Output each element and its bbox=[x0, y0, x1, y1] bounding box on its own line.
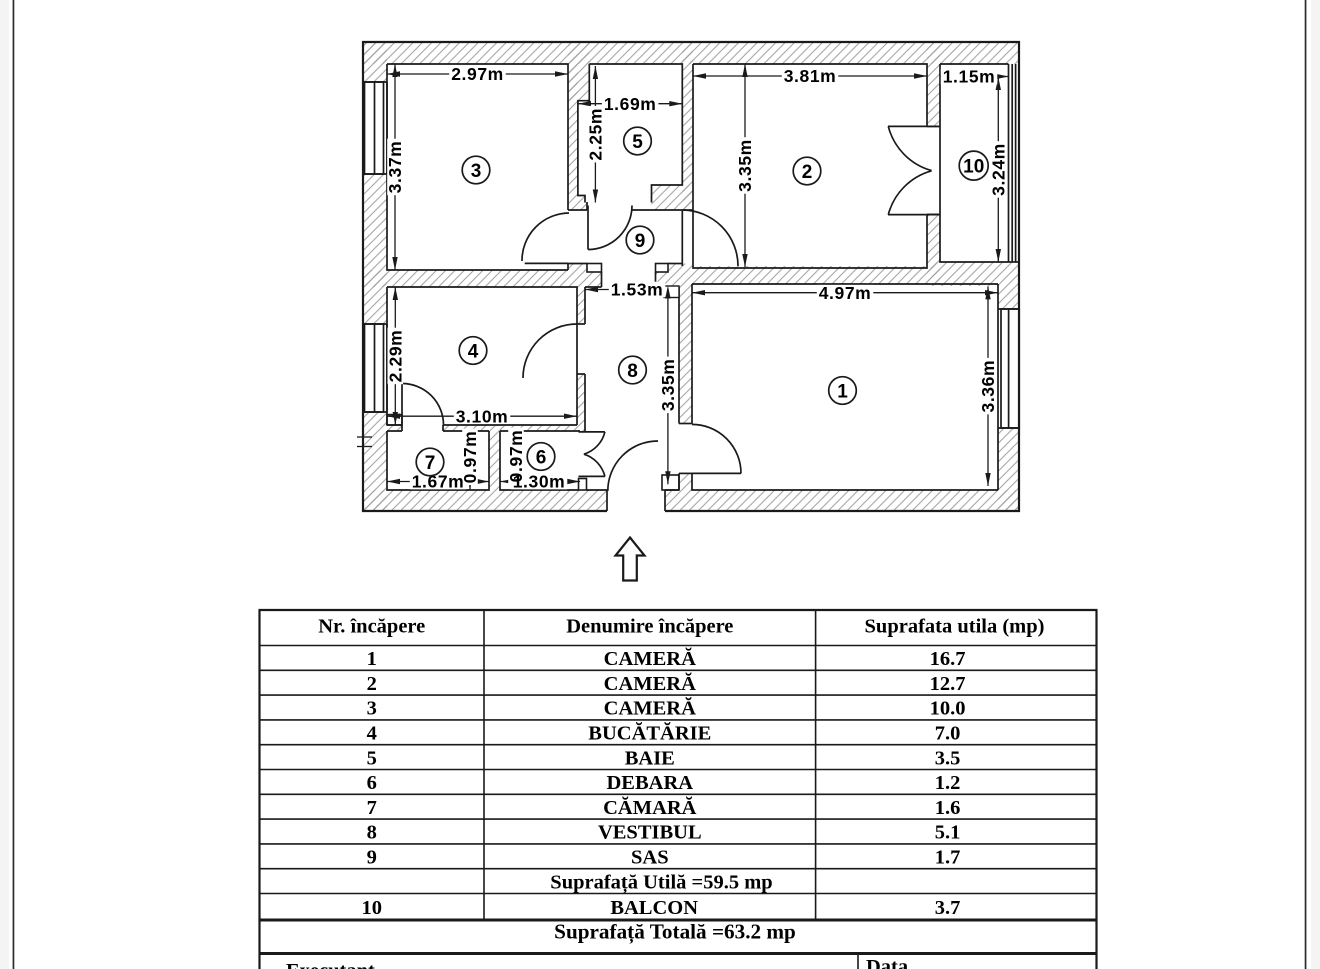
svg-text:3.10m: 3.10m bbox=[456, 406, 509, 426]
svg-text:Suprafață Utilă =59.5 mp: Suprafață Utilă =59.5 mp bbox=[550, 871, 772, 894]
svg-text:4: 4 bbox=[367, 723, 377, 745]
svg-text:Executant: Executant bbox=[286, 960, 375, 969]
svg-text:7: 7 bbox=[425, 453, 436, 474]
svg-text:9: 9 bbox=[367, 847, 377, 869]
svg-text:CĂMARĂ: CĂMARĂ bbox=[603, 795, 697, 819]
svg-text:7: 7 bbox=[367, 797, 377, 819]
svg-text:3.35m: 3.35m bbox=[658, 359, 678, 412]
svg-text:3.24m: 3.24m bbox=[989, 143, 1009, 196]
svg-text:1.6: 1.6 bbox=[935, 797, 961, 819]
svg-text:9: 9 bbox=[635, 231, 646, 252]
svg-text:BUCĂTĂRIE: BUCĂTĂRIE bbox=[588, 721, 711, 745]
svg-text:2.29m: 2.29m bbox=[386, 330, 406, 383]
svg-text:5.1: 5.1 bbox=[935, 822, 961, 844]
svg-text:BALCON: BALCON bbox=[610, 897, 698, 919]
svg-text:Suprafata utila (mp): Suprafata utila (mp) bbox=[865, 616, 1045, 638]
svg-text:SAS: SAS bbox=[631, 847, 669, 869]
svg-text:2: 2 bbox=[367, 673, 377, 695]
svg-text:CAMERĂ: CAMERĂ bbox=[604, 671, 696, 695]
svg-text:1: 1 bbox=[367, 648, 377, 670]
svg-text:CAMERĂ: CAMERĂ bbox=[604, 696, 696, 720]
svg-text:1: 1 bbox=[837, 382, 848, 403]
svg-text:6: 6 bbox=[367, 772, 377, 794]
svg-text:VESTIBUL: VESTIBUL bbox=[598, 822, 702, 844]
svg-text:2: 2 bbox=[802, 162, 813, 183]
svg-text:1.67m: 1.67m bbox=[412, 472, 465, 492]
svg-text:DEBARA: DEBARA bbox=[607, 772, 694, 794]
svg-text:3: 3 bbox=[471, 161, 482, 182]
svg-text:0.97m: 0.97m bbox=[506, 430, 526, 483]
svg-text:1.15m: 1.15m bbox=[943, 67, 996, 87]
svg-text:3: 3 bbox=[367, 698, 377, 720]
svg-text:4.97m: 4.97m bbox=[819, 283, 872, 303]
svg-text:3.37m: 3.37m bbox=[385, 141, 405, 194]
svg-text:Data: Data bbox=[866, 956, 908, 969]
svg-text:1.2: 1.2 bbox=[935, 772, 961, 794]
svg-text:8: 8 bbox=[367, 822, 377, 844]
svg-text:3.7: 3.7 bbox=[935, 897, 961, 919]
svg-text:8: 8 bbox=[627, 361, 638, 382]
svg-text:7.0: 7.0 bbox=[935, 723, 961, 745]
svg-text:1.7: 1.7 bbox=[935, 847, 961, 869]
svg-text:12.7: 12.7 bbox=[930, 673, 966, 695]
svg-text:3.36m: 3.36m bbox=[978, 360, 998, 413]
svg-text:10: 10 bbox=[963, 157, 984, 178]
svg-text:CAMERĂ: CAMERĂ bbox=[604, 646, 696, 670]
svg-text:10: 10 bbox=[362, 897, 383, 919]
svg-text:5: 5 bbox=[367, 747, 377, 769]
svg-text:Nr. încăpere: Nr. încăpere bbox=[318, 615, 425, 637]
svg-text:3.5: 3.5 bbox=[935, 747, 961, 769]
svg-text:4: 4 bbox=[468, 342, 479, 363]
svg-text:3.81m: 3.81m bbox=[784, 66, 837, 86]
svg-text:3.35m: 3.35m bbox=[735, 139, 755, 192]
svg-text:2.25m: 2.25m bbox=[586, 108, 606, 161]
svg-text:0.97m: 0.97m bbox=[460, 431, 480, 484]
svg-text:Suprafață Totală =63.2 mp: Suprafață Totală =63.2 mp bbox=[554, 920, 796, 945]
svg-text:1.69m: 1.69m bbox=[604, 94, 657, 114]
svg-text:16.7: 16.7 bbox=[930, 648, 966, 670]
svg-text:10.0: 10.0 bbox=[930, 698, 966, 720]
svg-text:2.97m: 2.97m bbox=[451, 64, 504, 84]
svg-text:6: 6 bbox=[536, 448, 547, 469]
svg-text:1.53m: 1.53m bbox=[611, 280, 664, 300]
svg-text:Denumire încăpere: Denumire încăpere bbox=[566, 615, 733, 637]
svg-text:5: 5 bbox=[632, 132, 643, 153]
svg-text:BAIE: BAIE bbox=[625, 747, 675, 769]
